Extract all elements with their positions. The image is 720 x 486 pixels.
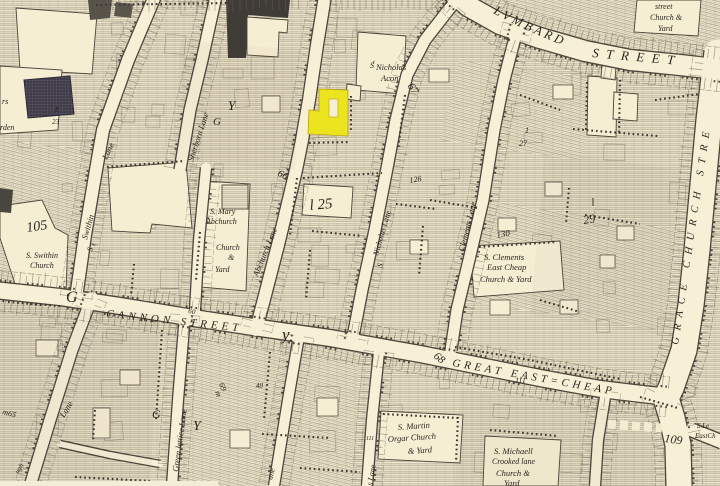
svg-text:street: street xyxy=(655,2,673,11)
svg-text:105: 105 xyxy=(25,218,48,236)
svg-text:Church & Yard: Church & Yard xyxy=(480,274,532,284)
svg-text:Acon: Acon xyxy=(380,73,398,83)
svg-text:Church: Church xyxy=(216,243,240,252)
svg-text:27: 27 xyxy=(519,139,528,148)
svg-text:rden: rden xyxy=(0,123,14,132)
svg-text:Church: Church xyxy=(30,261,54,270)
svg-text:G: G xyxy=(152,407,161,421)
svg-text:Abchurch: Abchurch xyxy=(205,217,237,226)
svg-text:S. Swithin: S. Swithin xyxy=(26,251,58,260)
svg-text:Yard: Yard xyxy=(658,24,674,33)
svg-text:Yard: Yard xyxy=(215,265,231,274)
svg-text:Nicholas: Nicholas xyxy=(375,62,407,72)
svg-text:S. Clements: S. Clements xyxy=(484,252,525,262)
svg-text:EastCh: EastCh xyxy=(694,432,716,440)
svg-text:& Yard: & Yard xyxy=(407,444,433,456)
svg-text:G: G xyxy=(213,116,221,128)
svg-text:rs: rs xyxy=(2,97,8,106)
svg-text:111: 111 xyxy=(515,376,526,385)
svg-text:Church &: Church & xyxy=(650,13,683,22)
svg-text:East Cheap: East Cheap xyxy=(486,262,526,272)
svg-text:23: 23 xyxy=(52,118,60,126)
svg-text:S. Michaell: S. Michaell xyxy=(494,446,533,456)
svg-text:G: G xyxy=(66,289,78,306)
svg-text:109: 109 xyxy=(664,431,684,447)
svg-text:l 25: l 25 xyxy=(309,196,334,214)
svg-text:48: 48 xyxy=(256,382,264,390)
svg-text:111: 111 xyxy=(366,436,374,442)
svg-text:E: E xyxy=(54,106,60,114)
svg-text:S.Le: S.Le xyxy=(697,422,709,430)
svg-text:29: 29 xyxy=(582,211,596,227)
svg-text:Yard: Yard xyxy=(504,478,520,486)
svg-text:S. Mary: S. Mary xyxy=(210,207,236,216)
svg-text:Church &: Church & xyxy=(496,468,530,478)
svg-text:&: & xyxy=(228,253,235,262)
svg-text:Crooked lane: Crooked lane xyxy=(492,457,535,466)
svg-text:1: 1 xyxy=(525,126,529,135)
svg-text:y: y xyxy=(280,325,290,344)
